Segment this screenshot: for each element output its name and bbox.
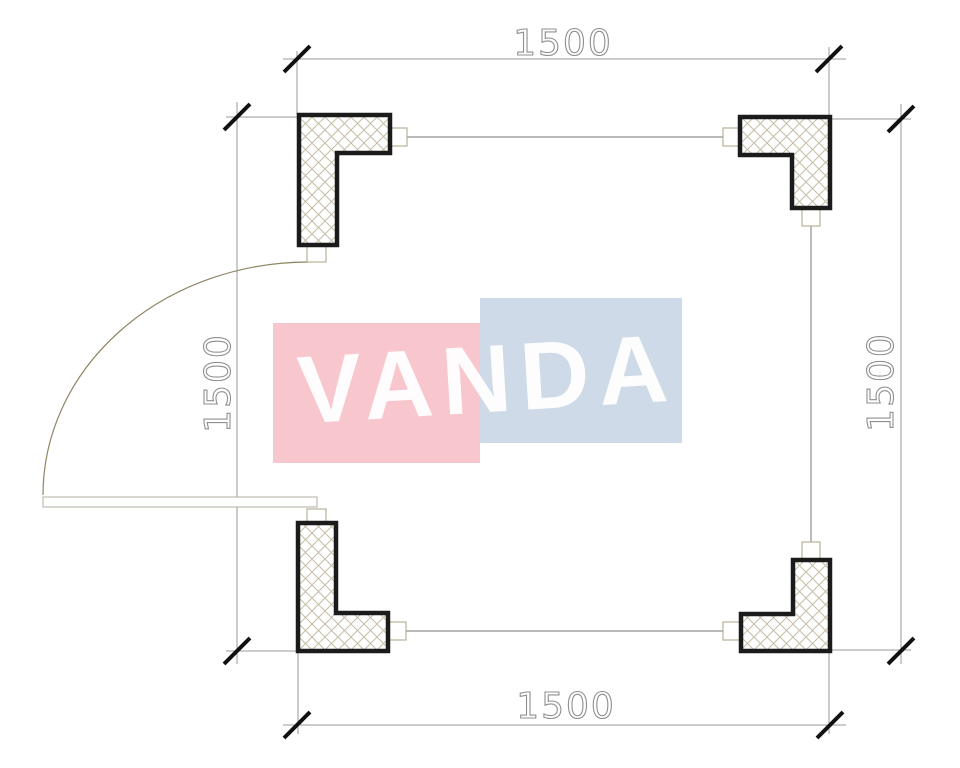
tab-bottomleft-right — [388, 622, 406, 640]
column-top-left — [299, 115, 390, 245]
tab-bottomright-left — [723, 622, 741, 640]
dimension-top: 1500 — [283, 23, 846, 117]
watermark: VANDA — [273, 298, 682, 463]
door-leaf — [43, 497, 317, 507]
door-swing-arc — [43, 262, 309, 495]
floor-plan-canvas: VANDA 1500 1500 1500 — [0, 0, 960, 768]
dimension-top-label: 1500 — [513, 23, 613, 64]
column-bottom-right — [741, 560, 830, 651]
dimension-bottom-label: 1500 — [516, 686, 616, 727]
dimension-bottom: 1500 — [283, 650, 846, 738]
tab-topright-bottom — [802, 208, 820, 226]
tab-topleft-right — [390, 128, 407, 146]
dimension-left-label: 1500 — [198, 333, 239, 433]
column-bottom-left — [298, 523, 388, 651]
tab-topright-left — [723, 128, 740, 146]
tab-bottomright-top — [802, 542, 820, 560]
tab-topleft-bottom — [307, 245, 326, 262]
dimension-right: 1500 — [830, 104, 914, 664]
column-top-right — [740, 117, 830, 208]
floor-plan-drawing: VANDA 1500 1500 1500 — [0, 0, 960, 768]
dimension-right-label: 1500 — [861, 332, 902, 432]
